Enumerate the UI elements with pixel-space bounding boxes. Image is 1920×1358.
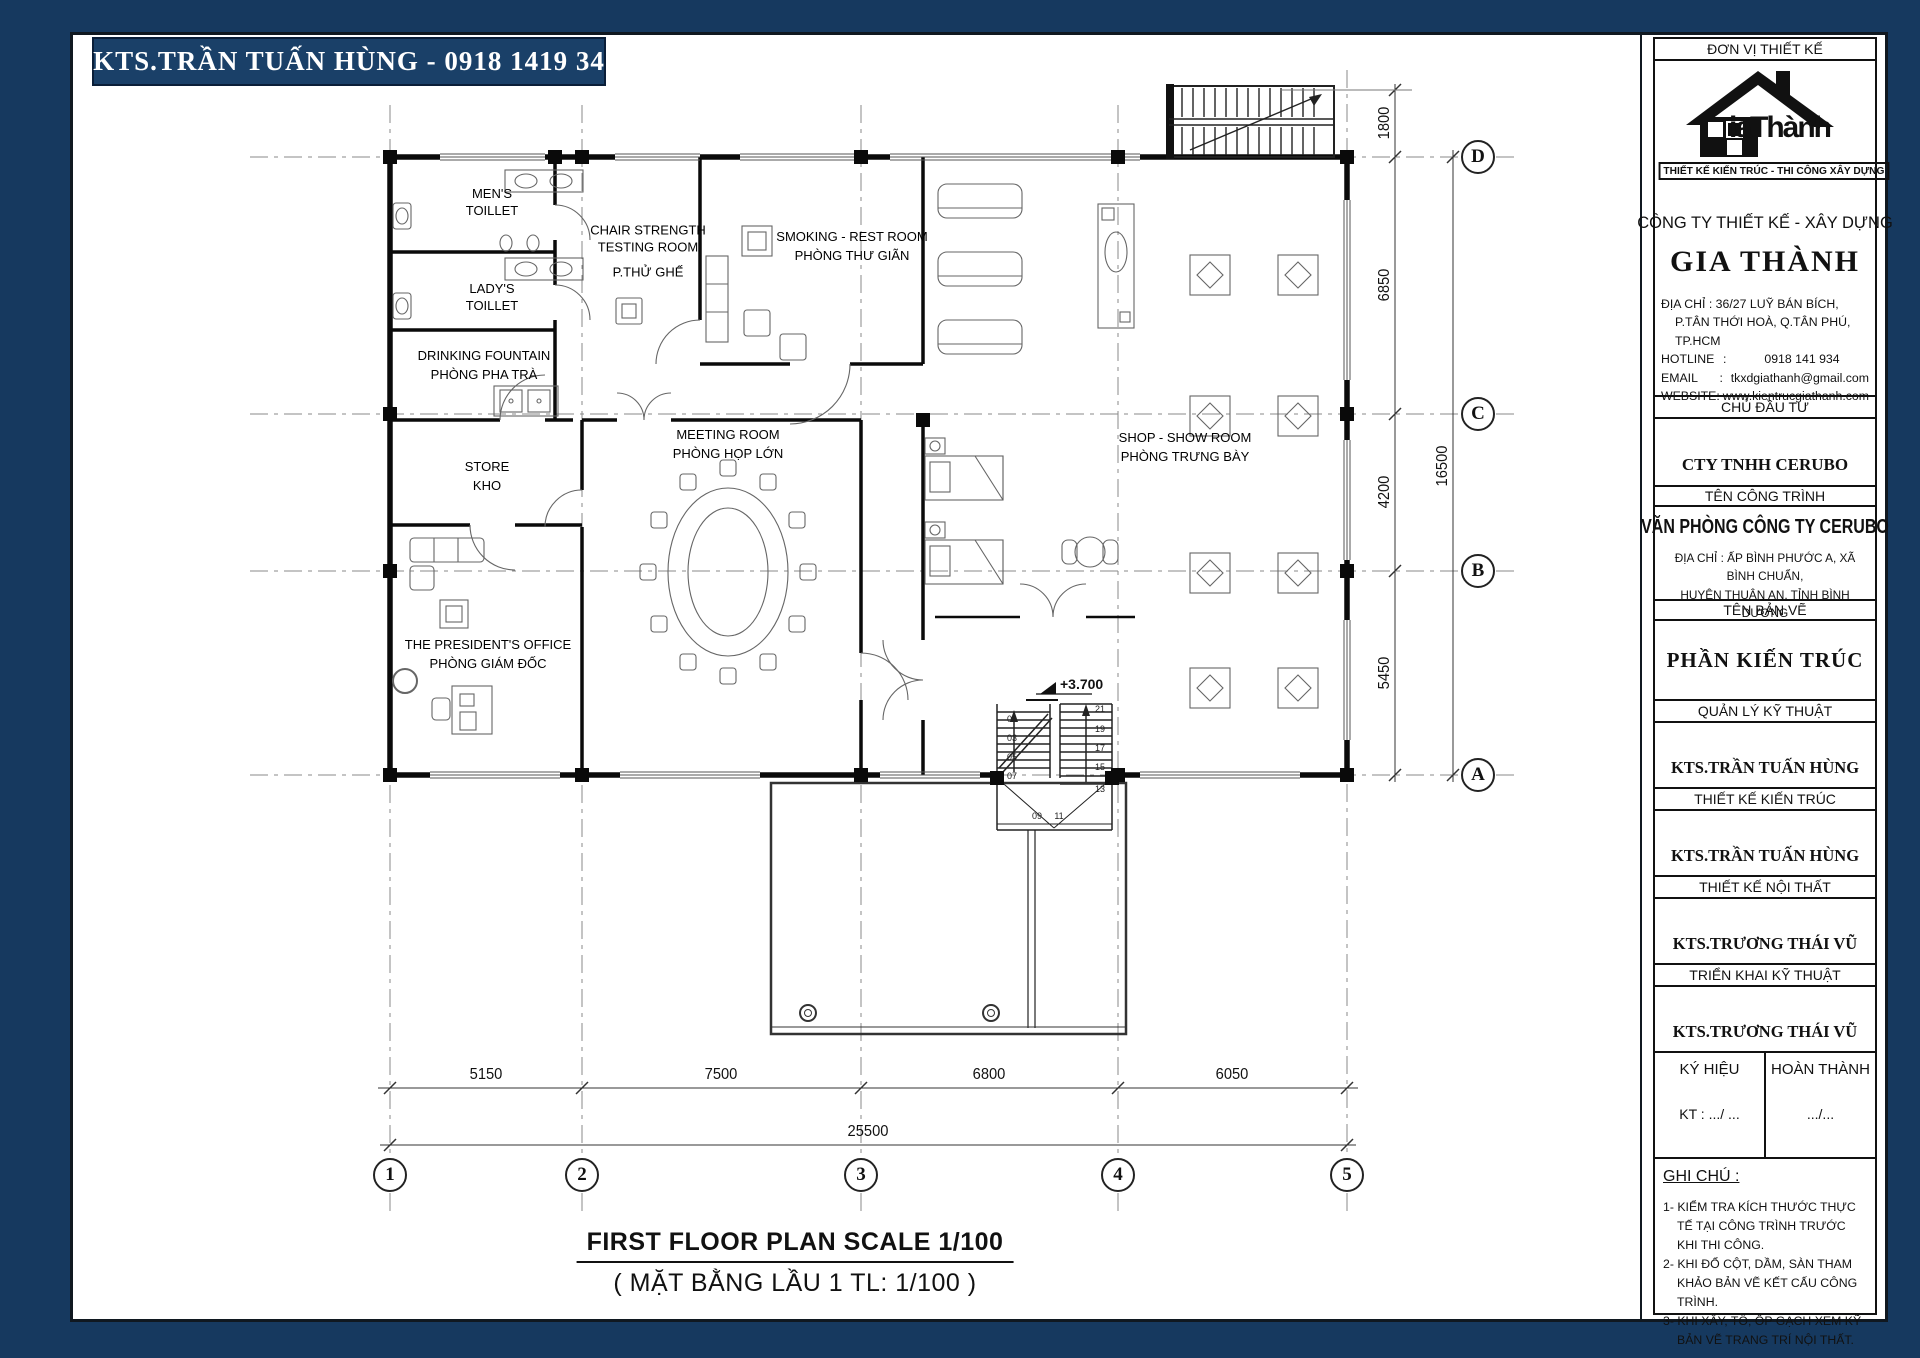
stair-step: 05 — [1007, 752, 1017, 762]
display-beds — [925, 438, 1003, 584]
logo-tagline: THIẾT KẾ KIẾN TRÚC - THI CÔNG XÂY DỰNG — [1659, 162, 1890, 180]
stair-step: 19 — [1095, 724, 1105, 734]
stair-step: 03 — [1007, 733, 1017, 743]
grid-bubble-D: D — [1461, 140, 1495, 174]
dim-bottom-total: 25500 — [848, 1123, 889, 1141]
note-3: 3- KHI XÂY, TÔ, ỐP GẠCH XEM KỸ BẢN VẼ TR… — [1663, 1312, 1867, 1350]
display-cabinet — [1098, 204, 1134, 328]
company-logo: iaThành THIẾT KẾ KIẾN TRÚC - THI CÔNG XÂ… — [1655, 61, 1875, 209]
dim-bottom-1: 5150 — [470, 1066, 503, 1084]
drawing-name-header: TÊN BẢN VẼ — [1655, 599, 1875, 621]
grid-bubble-5: 5 — [1330, 1158, 1364, 1192]
section-header-interior: THIẾT KẾ NỘI THẤT — [1655, 875, 1875, 899]
hotline-row: HOTLINE : 0918 141 934 — [1661, 350, 1869, 368]
drawing-title-en: FIRST FLOOR PLAN SCALE 1/100 — [577, 1228, 1014, 1263]
project-header: TÊN CÔNG TRÌNH — [1655, 485, 1875, 507]
dim-bottom-2: 7500 — [705, 1066, 738, 1084]
logo-text: iaThành — [1729, 111, 1830, 145]
section-header-arch-design: THIẾT KẾ KIẾN TRÚC — [1655, 787, 1875, 811]
meeting-table — [640, 460, 816, 684]
drawing-name: PHẦN KIẾN TRÚC — [1655, 621, 1875, 699]
dim-right-1: 1800 — [1376, 107, 1394, 140]
sign-table: KÝ HIỆU KT : .../ ... HOÀN THÀNH .../... — [1655, 1051, 1875, 1157]
stair-step: 21 — [1095, 704, 1105, 714]
room-label-chair-test: CHAIR STRENGTH TESTING ROOM P.THỬ GHẾ — [590, 223, 706, 282]
company-address-2: P.TÂN THỚI HOÀ, Q.TÂN PHÚ, TP.HCM — [1661, 313, 1869, 350]
dim-bottom-3: 6800 — [973, 1066, 1006, 1084]
grid-bubble-A: A — [1461, 758, 1495, 792]
grid-bubble-C: C — [1461, 397, 1495, 431]
email-row: EMAIL : tkxdgiathanh@gmail.com — [1661, 369, 1869, 387]
shop-sofas — [938, 184, 1022, 354]
room-label-smoking: SMOKING - REST ROOM PHÒNG THƯ GIÃN — [776, 229, 927, 265]
section-header-tech-dev: TRIỂN KHAI KỸ THUẬT — [1655, 963, 1875, 987]
stair-step: 07 — [1007, 771, 1017, 781]
president-furniture — [393, 538, 492, 734]
dim-right-2: 6850 — [1376, 269, 1394, 302]
title-block: ĐƠN VỊ THIẾT KẾ iaThành THIẾT KẾ KIẾN TR… — [1653, 37, 1877, 1315]
company-type: CÔNG TY THIẾT KẾ - XÂY DỰNG — [1655, 209, 1875, 237]
room-label-drinking: DRINKING FOUNTAIN PHÒNG PHA TRÀ — [418, 348, 551, 384]
drawing-sheet-page: KTS.TRẦN TUẤN HÙNG - 0918 1419 34 — [0, 0, 1920, 1358]
project-name: VĂN PHÒNG CÔNG TY CERUBO — [1677, 507, 1853, 547]
section-name-tech-mgmt: KTS.TRẦN TUẤN HÙNG — [1655, 723, 1875, 787]
section-name-arch-design: KTS.TRẦN TUẤN HÙNG — [1655, 811, 1875, 875]
stair-step: 17 — [1095, 743, 1105, 753]
dim-right-4: 5450 — [1376, 657, 1394, 690]
company-address-1: ĐỊA CHỈ : 36/27 LUỸ BÁN BÍCH, — [1661, 295, 1869, 313]
symbol-column: KÝ HIỆU KT : .../ ... — [1655, 1053, 1766, 1157]
floor-plan-drawing — [0, 0, 1920, 1358]
section-header-tech-mgmt: QUẢN LÝ KỸ THUẬT — [1655, 699, 1875, 723]
grid-bubble-3: 3 — [844, 1158, 878, 1192]
chair-test-furniture — [616, 298, 642, 324]
stair-step: 01 — [1007, 714, 1017, 724]
grid-bubble-2: 2 — [565, 1158, 599, 1192]
project-address: ĐỊA CHỈ : ẤP BÌNH PHƯỚC A, XÃ BÌNH CHUẨN… — [1655, 547, 1875, 599]
grid-bubble-1: 1 — [373, 1158, 407, 1192]
hotline-value: 0918 141 934 — [1735, 350, 1869, 368]
drawing-title-vi: ( MẶT BẰNG LẦU 1 TL: 1/100 ) — [577, 1269, 1014, 1298]
stair-step: 15 — [1095, 762, 1105, 772]
design-unit-header: ĐƠN VỊ THIẾT KẾ — [1655, 39, 1875, 61]
exterior-stair — [1166, 84, 1334, 159]
symbol-value: KT : .../ ... — [1679, 1106, 1739, 1122]
entrance-porch — [771, 783, 1126, 1034]
notes-label: GHI CHÚ : — [1663, 1165, 1867, 1190]
stair-step: 13 — [1095, 784, 1105, 794]
room-label-president: THE PRESIDENT'S OFFICE PHÒNG GIÁM ĐỐC — [405, 637, 571, 673]
notes-section: GHI CHÚ : 1- KIỂM TRA KÍCH THƯỚC THỰC TẾ… — [1655, 1157, 1875, 1313]
complete-column: HOÀN THÀNH .../... — [1766, 1053, 1875, 1157]
grid-bubble-4: 4 — [1101, 1158, 1135, 1192]
investor-header: CHỦ ĐẦU TƯ — [1655, 395, 1875, 419]
dim-right-total: 16500 — [1434, 446, 1452, 487]
note-1: 1- KIỂM TRA KÍCH THƯỚC THỰC TẾ TẠI CÔNG … — [1663, 1198, 1867, 1255]
room-label-shop: SHOP - SHOW ROOM PHÒNG TRƯNG BÀY — [1119, 430, 1252, 466]
drawing-title: FIRST FLOOR PLAN SCALE 1/100 ( MẶT BẰNG … — [577, 1228, 1014, 1298]
company-name: GIA THÀNH — [1655, 237, 1875, 287]
section-name-interior: KTS.TRƯƠNG THÁI VŨ — [1655, 899, 1875, 963]
note-2: 2- KHI ĐỔ CỘT, DẦM, SÀN THAM KHẢO BẢN VẼ… — [1663, 1255, 1867, 1312]
company-contact: ĐỊA CHỈ : 36/27 LUỸ BÁN BÍCH, P.TÂN THỚI… — [1655, 291, 1875, 395]
stair-step: 09 — [1032, 811, 1042, 821]
show-tables — [1190, 255, 1318, 708]
room-label-mens-toilet: MEN'S TOILLET — [466, 186, 519, 220]
room-label-store: STORE KHO — [465, 459, 510, 495]
complete-value: .../... — [1807, 1106, 1834, 1122]
dim-bottom-4: 6050 — [1216, 1066, 1249, 1084]
investor-name: CTY TNHH CERUBO — [1655, 419, 1875, 485]
round-table — [1062, 537, 1118, 567]
email-value: tkxdgiathanh@gmail.com — [1731, 369, 1869, 387]
section-name-tech-dev: KTS.TRƯƠNG THÁI VŨ — [1655, 987, 1875, 1051]
room-label-meeting: MEETING ROOM PHÒNG HỌP LỚN — [673, 427, 784, 463]
dim-right-3: 4200 — [1376, 476, 1394, 509]
grid-bubble-B: B — [1461, 554, 1495, 588]
stair-step: 11 — [1054, 811, 1063, 821]
level-marker: +3.700 — [1060, 676, 1103, 692]
room-label-ladys-toilet: LADY'S TOILLET — [466, 281, 519, 315]
